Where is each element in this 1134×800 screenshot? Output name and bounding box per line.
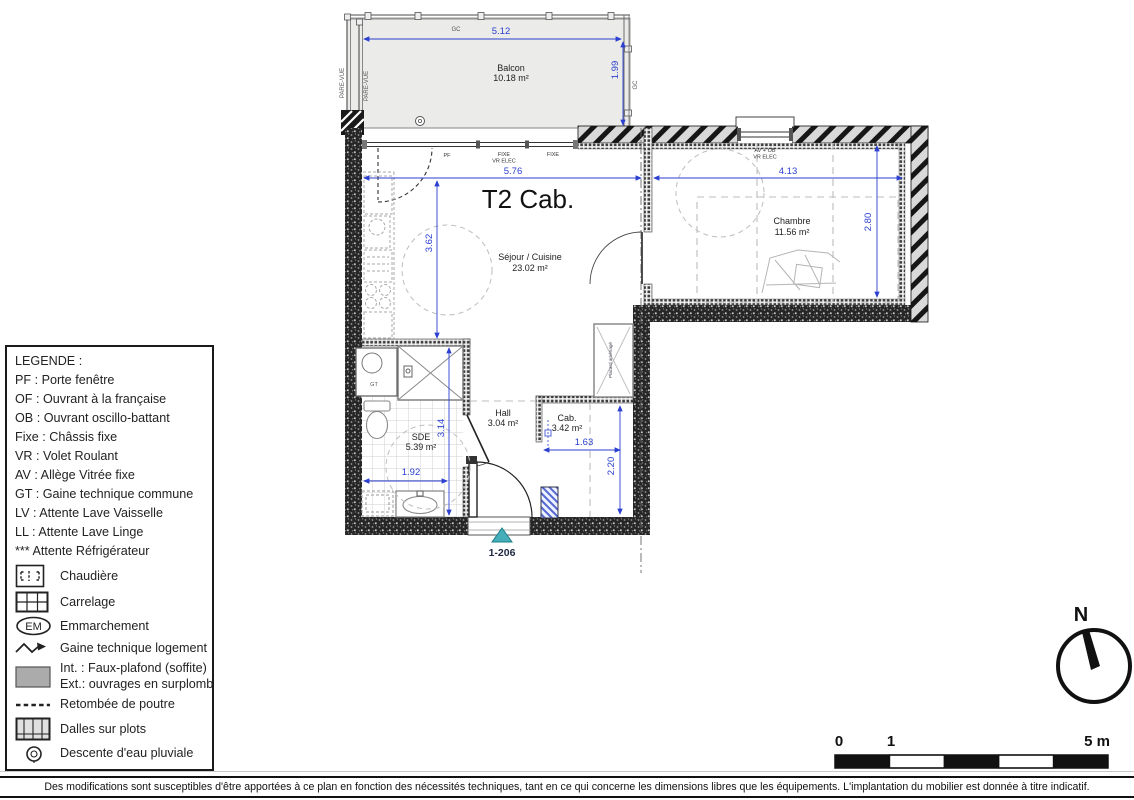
em-icon: EM: [15, 616, 53, 636]
north-compass: N: [1058, 604, 1130, 702]
pare-vue-label-2: PARE-VUE: [364, 71, 370, 101]
pf-balcony-door: [378, 148, 432, 202]
legend-line-ob: OB : Ouvrant oscillo-battant: [15, 409, 204, 428]
toilet: [364, 401, 390, 439]
dim-sde-height: 3.14: [436, 419, 447, 438]
chambre-door: [590, 232, 642, 284]
soffit-icon: [15, 666, 53, 688]
window-label-fixe: FIXE: [498, 152, 511, 158]
legend-label-duct: Gaine technique logement: [60, 639, 207, 658]
legend-line-vr: VR : Volet Roulant: [15, 447, 204, 466]
legend-line-pf: PF : Porte fenêtre: [15, 371, 204, 390]
boiler-icon: [15, 564, 53, 588]
em-icon-label: EM: [25, 621, 42, 633]
cab-area: 3.42 m²: [552, 423, 583, 433]
furniture-sketch: [762, 250, 840, 293]
legend-label-slab: Dalles sur plots: [60, 720, 146, 739]
chambre-area: 11.56 m²: [775, 227, 810, 237]
legend-row-duct: Gaine technique logement: [15, 639, 204, 658]
scale-one: 1: [887, 733, 895, 750]
gc-label-right: GC: [633, 80, 639, 90]
floor-plan-page: PARE-VUE PARE-VUE Balcon 10.18 m² GC GC: [0, 0, 1134, 800]
legend-label-downpipe: Descente d'eau pluviale: [60, 744, 193, 763]
legend-label-soffit-ext: Ext.: ouvrages en surplomb: [60, 677, 213, 693]
legend-row-tiles: Carrelage: [15, 591, 204, 613]
balcony-name: Balcon: [497, 63, 525, 73]
plan-title: T2 Cab.: [482, 184, 575, 214]
hall-name: Hall: [495, 408, 511, 418]
disclaimer-bar: Des modifications sont susceptibles d'êt…: [0, 776, 1134, 798]
sejour-name: Séjour / Cuisine: [498, 252, 562, 262]
legend-line-av: AV : Allège Vitrée fixe: [15, 466, 204, 485]
gt-label: GT: [370, 382, 378, 388]
dim-balcony-width: 5.12: [492, 26, 511, 37]
legend-label-em: Emmarchement: [60, 617, 149, 636]
duct-arrow-icon: [15, 640, 53, 658]
compass-needle: [1082, 630, 1100, 670]
dim-sde-width: 1.92: [402, 467, 421, 478]
legend-row-em: EM Emmarchement: [15, 616, 204, 636]
legend-row-soffit: Int. : Faux-plafond (soffite) Ext.: ouvr…: [15, 661, 204, 692]
balcony: PARE-VUE PARE-VUE Balcon 10.18 m² GC GC: [340, 13, 639, 136]
entry-door: [466, 456, 532, 535]
cab-name: Cab.: [557, 413, 576, 423]
sde-name: SDE: [412, 432, 431, 442]
north-label: N: [1074, 604, 1088, 626]
window-label-fixe2: FIXE: [547, 152, 560, 158]
tiles-icon: [15, 591, 53, 613]
placard-closet: Placard aménagé: [594, 324, 633, 397]
legend-line-ll: LL : Attente Lave Linge: [15, 523, 204, 542]
downpipe-icon: [15, 745, 53, 763]
downpipe-marker: [416, 117, 425, 126]
gc-label-top: GC: [452, 27, 462, 33]
chambre-name: Chambre: [773, 216, 810, 226]
slab-icon: [15, 717, 53, 741]
dim-cab-height: 2.20: [606, 457, 617, 476]
legend-label-tiles: Carrelage: [60, 593, 115, 612]
entry-ref-label: 1-206: [489, 547, 516, 559]
window-label-pf: PF: [443, 153, 451, 159]
washbasin: [396, 491, 444, 517]
dim-cab-width: 1.63: [575, 437, 594, 448]
sde-area: 5.39 m²: [406, 442, 437, 452]
gt-duct-box: GT: [356, 348, 397, 396]
legend-line-fixe: Fixe : Châssis fixe: [15, 428, 204, 447]
separator-line: [0, 771, 1134, 772]
beam-icon: [15, 700, 53, 710]
pare-vue-label-1: PARE-VUE: [340, 68, 346, 98]
dim-sejour-width: 5.76: [504, 166, 523, 177]
sejour-window: PF FIXE VR ELEC FIXE: [362, 140, 578, 165]
window-label-vr-elec: VR ELEC: [492, 159, 516, 165]
hall-area: 3.04 m²: [488, 418, 519, 428]
legend-line-fridge: *** Attente Réfrigérateur: [15, 542, 204, 561]
dim-chambre-height: 2.80: [863, 213, 874, 232]
legend-line-gt: GT : Gaine technique commune: [15, 485, 204, 504]
legend-row-boiler: Chaudière: [15, 564, 204, 588]
sejour-area: 23.02 m²: [512, 263, 548, 273]
legend-label-soffit-int: Int. : Faux-plafond (soffite): [60, 661, 213, 677]
shower: [398, 346, 463, 400]
legend-line-lv: LV : Attente Lave Vaisselle: [15, 504, 204, 523]
legend-label-beam: Retombée de poutre: [60, 695, 175, 714]
legend-row-downpipe: Descente d'eau pluviale: [15, 744, 204, 763]
placard-label: Placard aménagé: [608, 342, 613, 378]
scale-zero: 0: [835, 733, 843, 750]
legend-title: LEGENDE :: [15, 352, 204, 371]
legend-row-beam: Retombée de poutre: [15, 695, 204, 714]
scale-bar: 0 1 5 m: [835, 733, 1110, 768]
radiator: [541, 487, 558, 518]
legend-line-of: OF : Ouvrant à la française: [15, 390, 204, 409]
scale-five: 5 m: [1084, 733, 1110, 750]
disclaimer-text: Des modifications sont susceptibles d'êt…: [44, 781, 1089, 793]
dim-balcony-depth: 1.99: [610, 61, 621, 80]
balcony-area: 10.18 m²: [493, 73, 529, 83]
legend-box: LEGENDE : PF : Porte fenêtre OF : Ouvran…: [5, 345, 214, 771]
dim-sejour-height: 3.62: [424, 234, 435, 253]
legend-label-boiler: Chaudière: [60, 567, 118, 586]
elec-riser: [545, 420, 551, 448]
dim-chambre-width: 4.13: [779, 166, 798, 177]
chambre-window: AV + OB VR ELEC: [736, 117, 794, 161]
window-label-av-ob: AV + OB: [754, 148, 775, 154]
legend-row-slab: Dalles sur plots: [15, 717, 204, 741]
